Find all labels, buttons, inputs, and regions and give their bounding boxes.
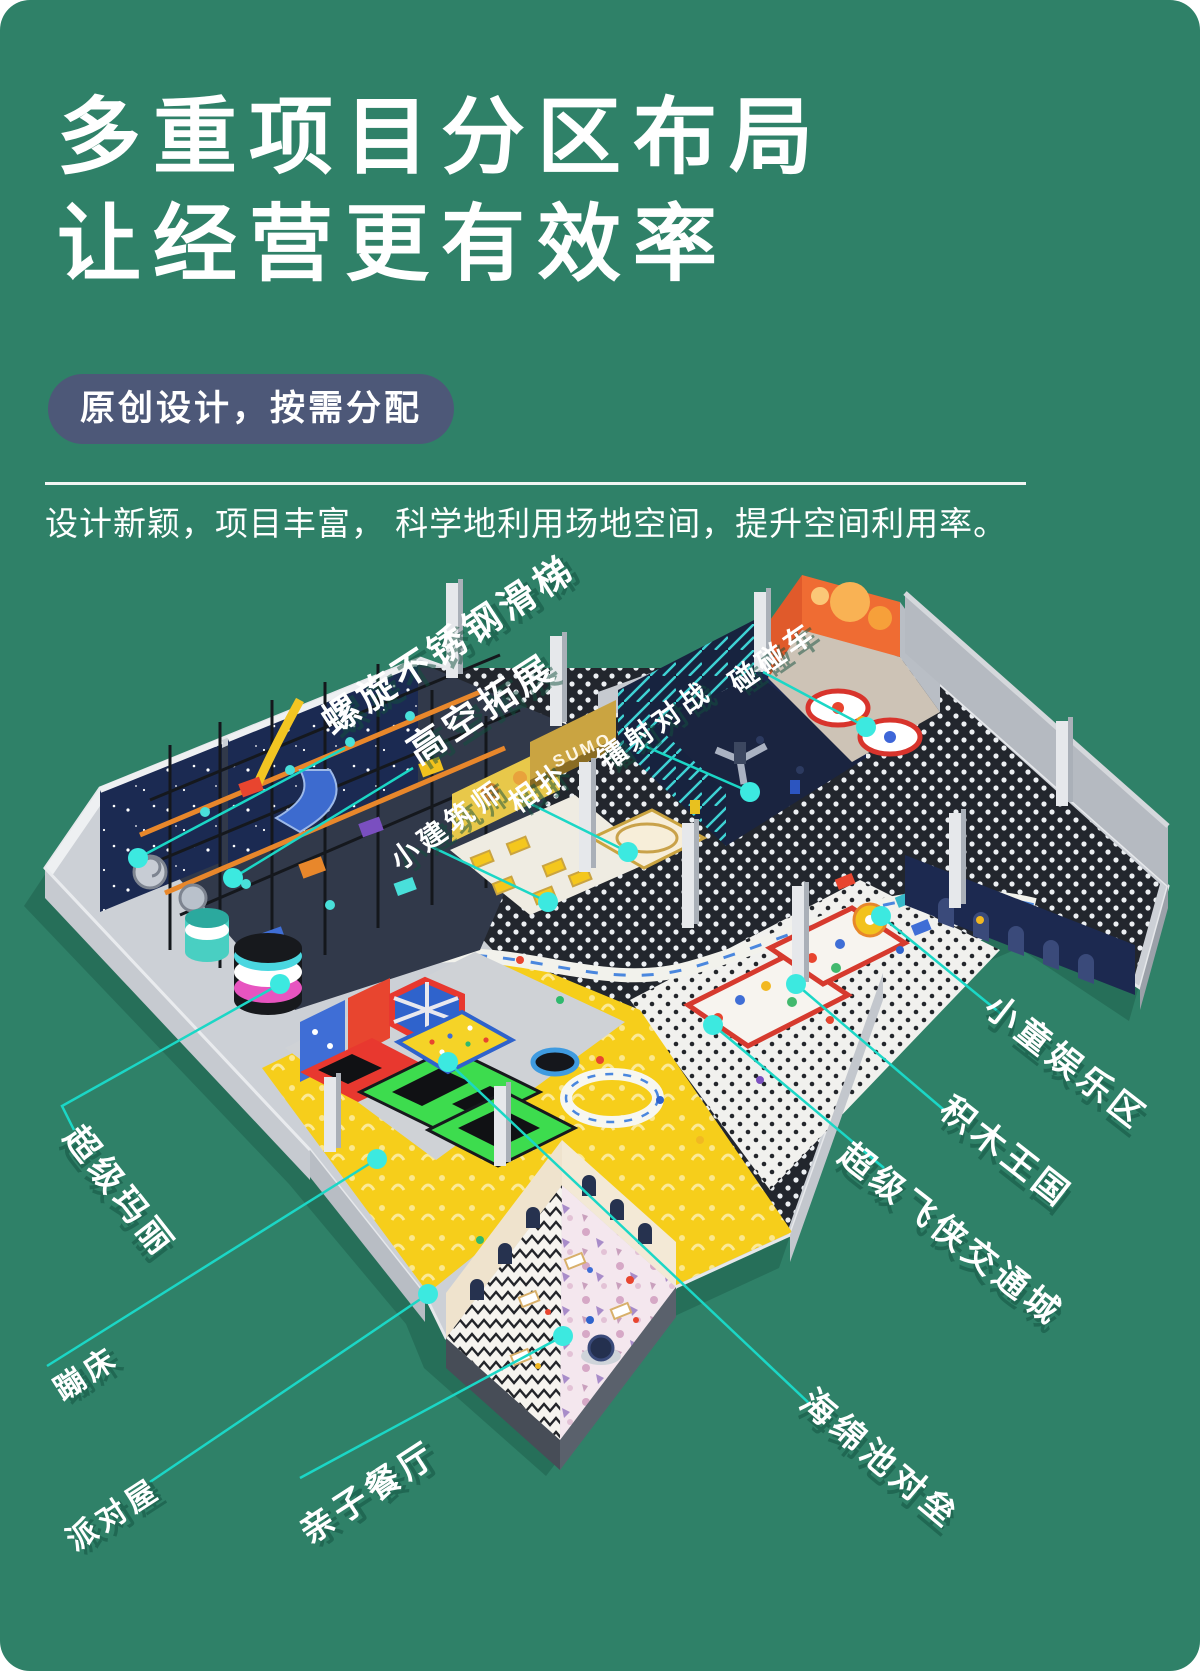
leader-lines: SUMO: [0, 0, 1200, 1671]
poster-page: 多重项目分区布局 让经营更有效率 原创设计，按需分配 设计新颖，项目丰富， 科学…: [0, 0, 1200, 1671]
svg-text:SUMO: SUMO: [550, 729, 615, 772]
